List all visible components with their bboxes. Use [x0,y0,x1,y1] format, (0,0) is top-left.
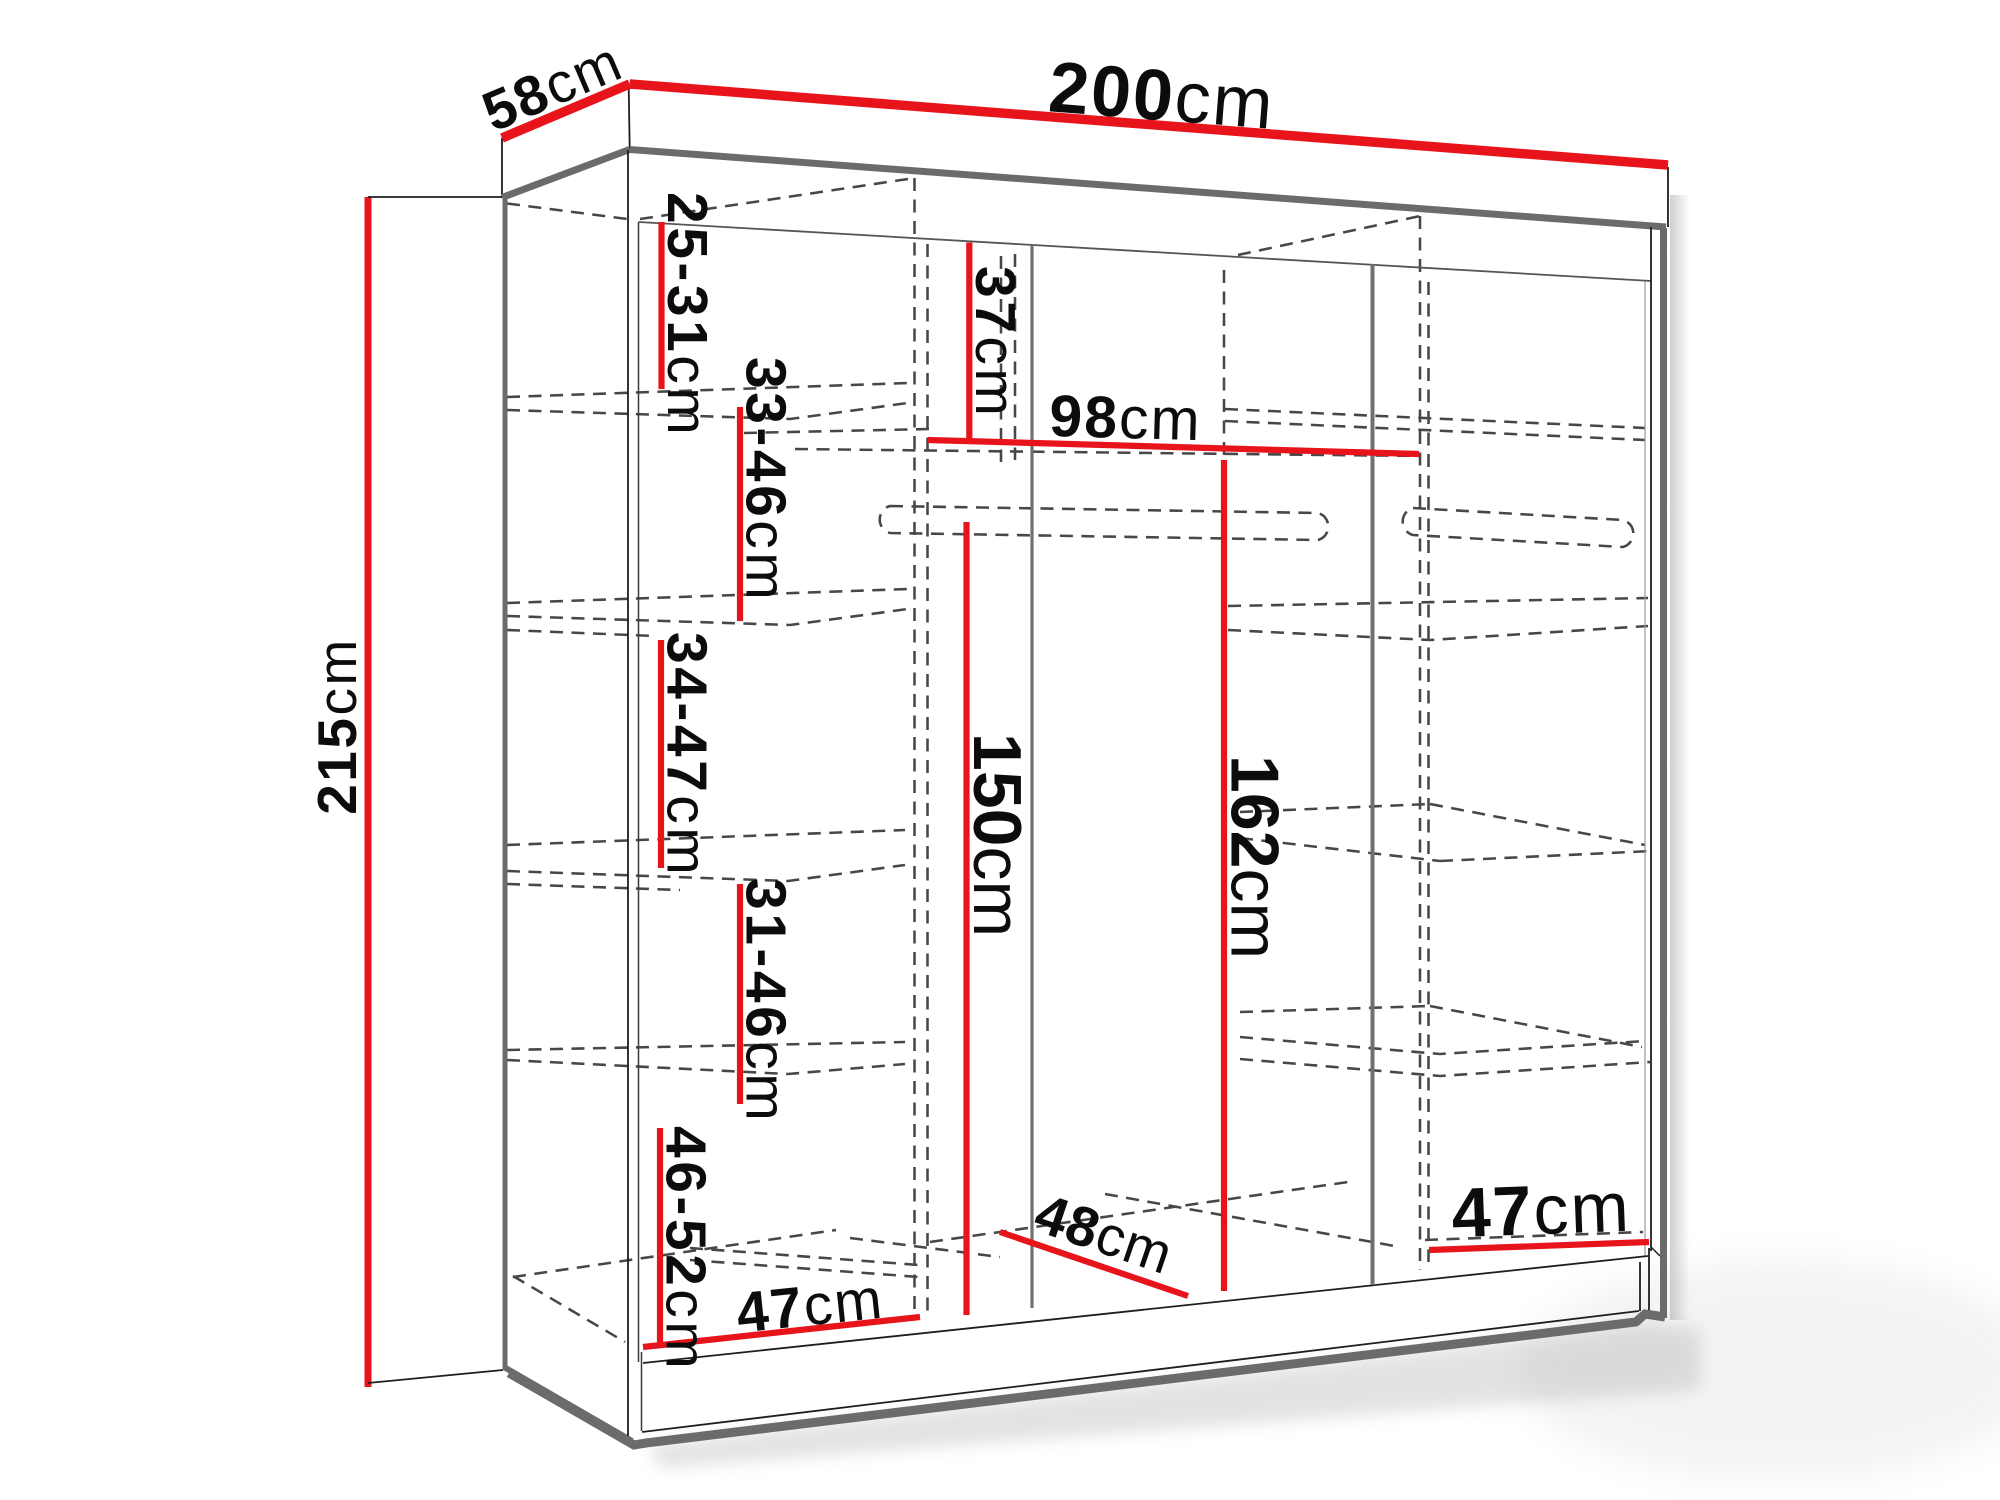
svg-text:34-47cm: 34-47cm [655,632,719,878]
svg-text:215cm: 215cm [306,637,368,815]
svg-text:31-46cm: 31-46cm [734,878,798,1124]
svg-text:150cm: 150cm [959,733,1035,937]
svg-text:47cm: 47cm [1450,1168,1632,1253]
svg-text:37cm: 37cm [963,266,1027,419]
svg-text:33-46cm: 33-46cm [734,357,798,603]
svg-text:25-31cm: 25-31cm [655,192,719,438]
svg-text:98cm: 98cm [1049,383,1203,453]
svg-text:46-52cm: 46-52cm [654,1126,718,1372]
svg-text:162cm: 162cm [1217,755,1293,959]
